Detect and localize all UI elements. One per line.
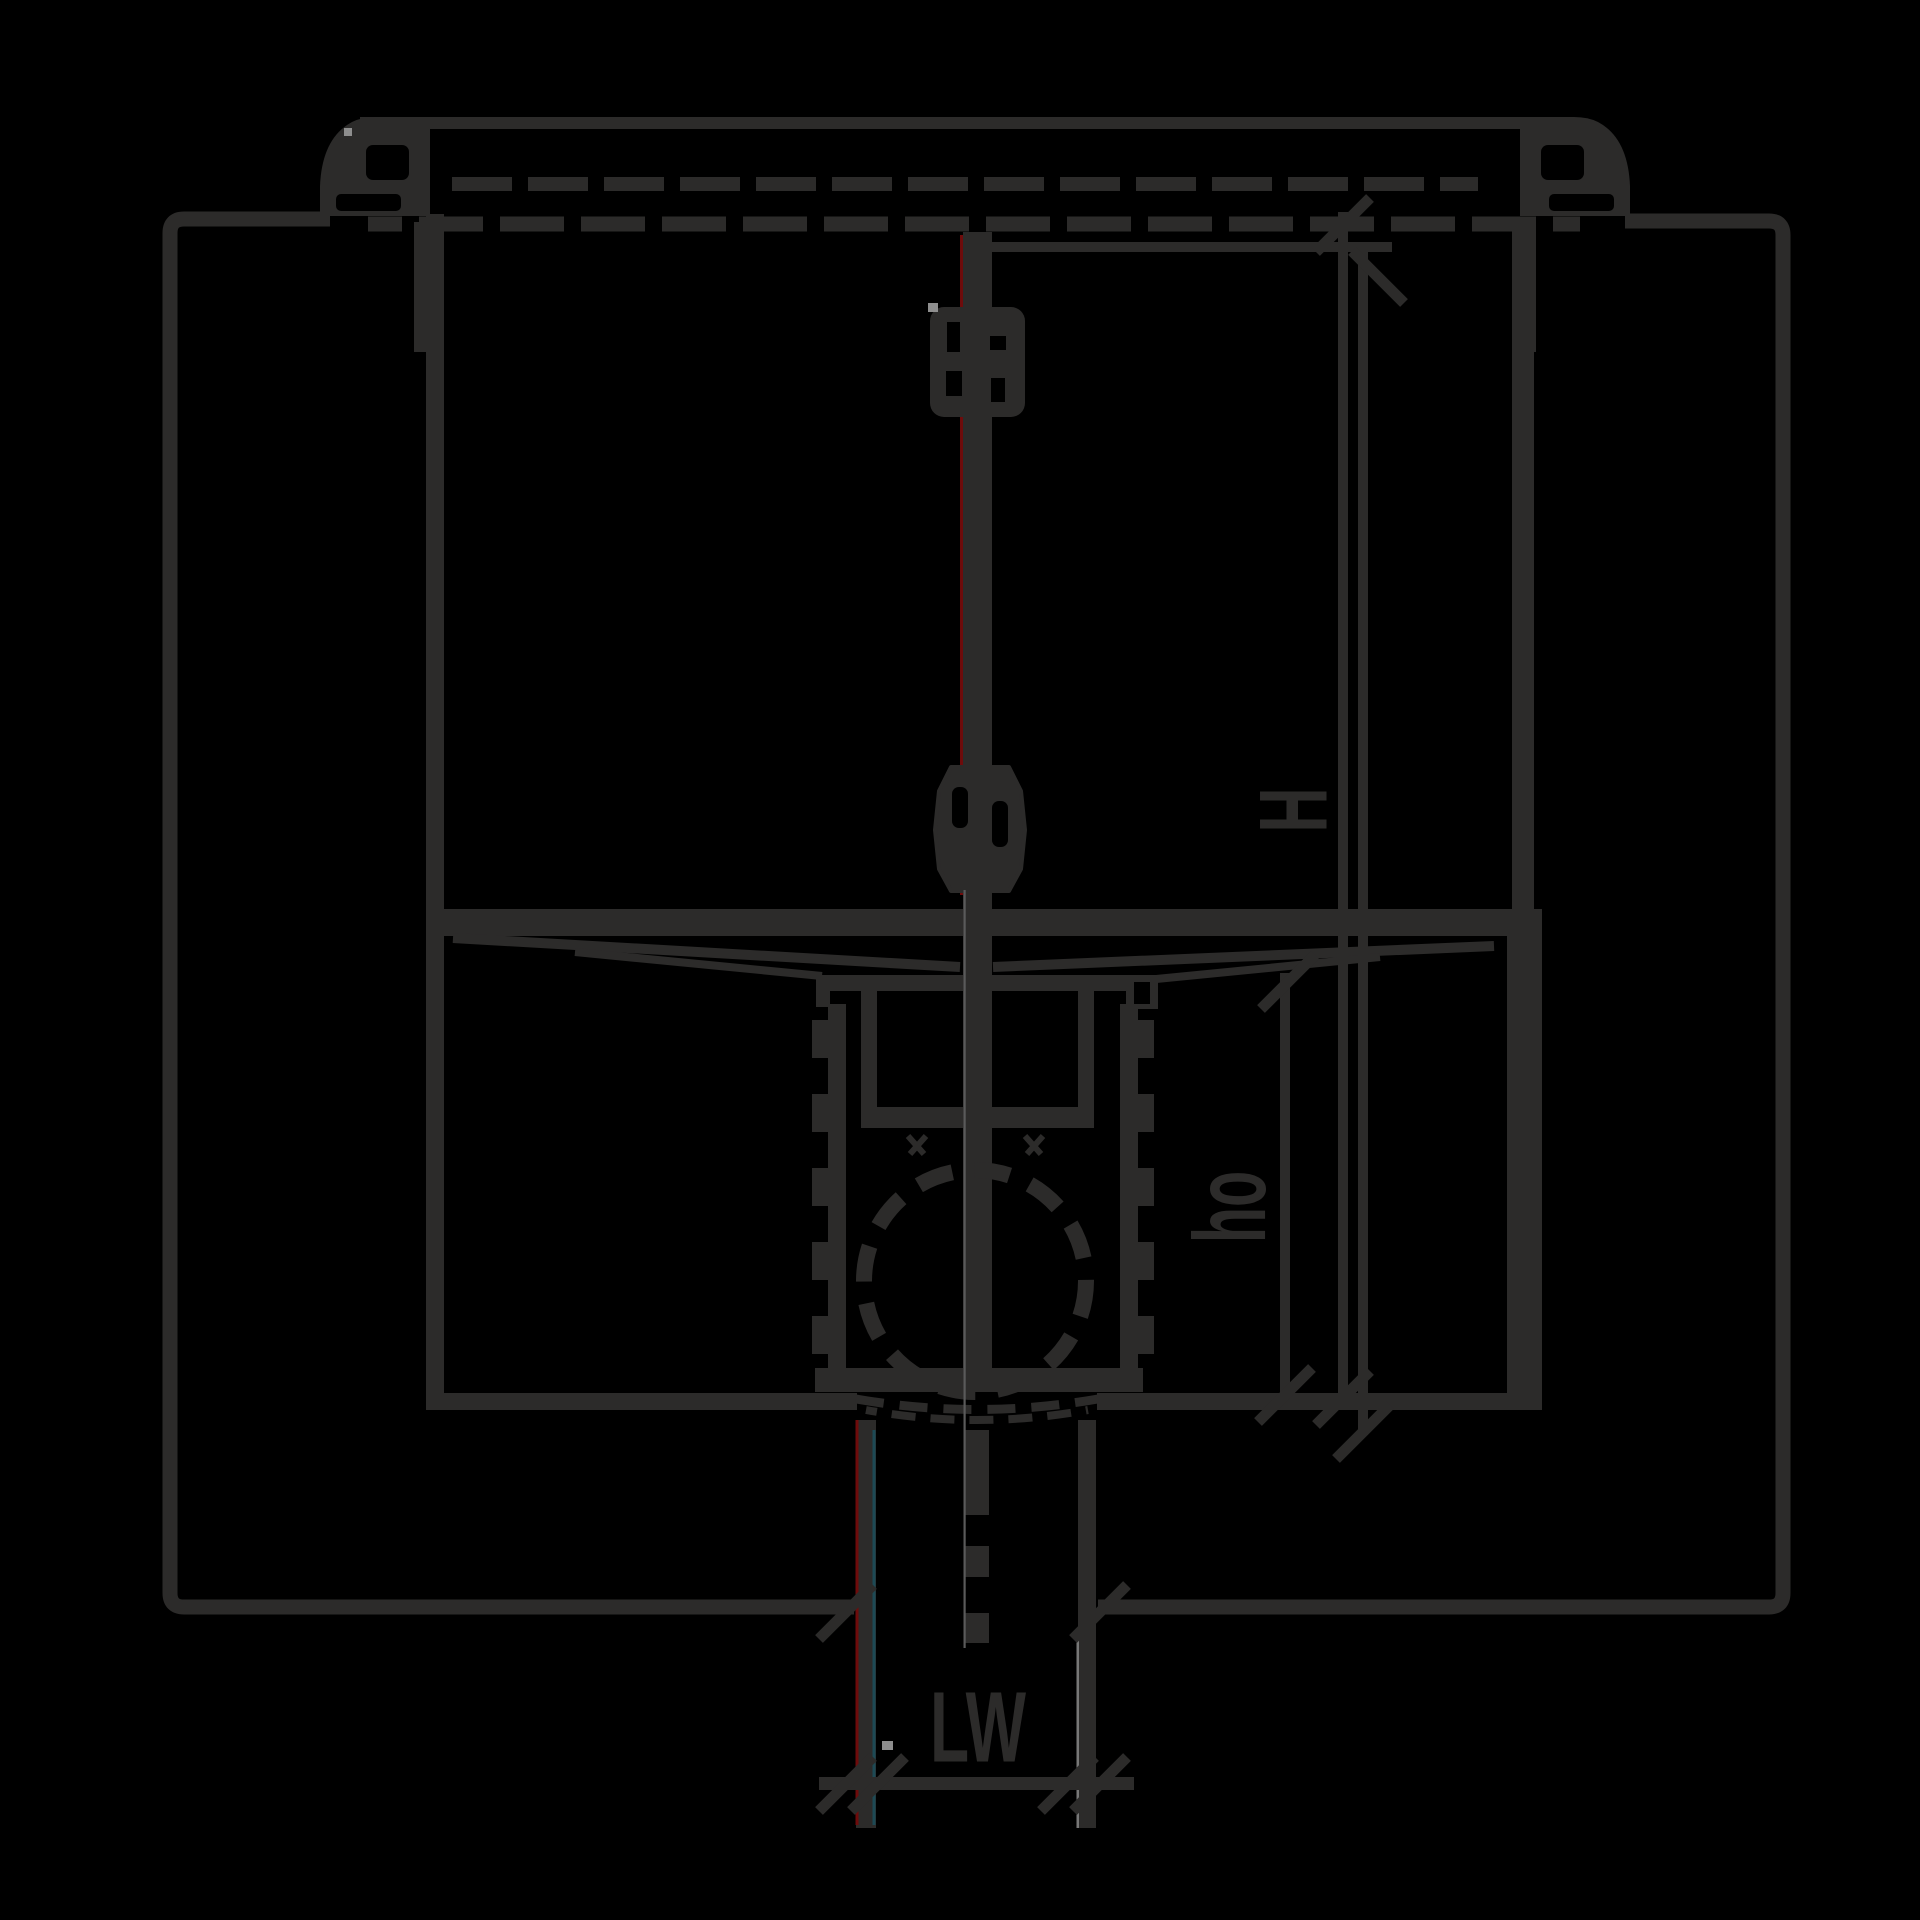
svg-text:H: H (1240, 787, 1348, 833)
svg-text:LW: LW (930, 1671, 1027, 1783)
svg-text:ho: ho (1173, 1171, 1287, 1243)
